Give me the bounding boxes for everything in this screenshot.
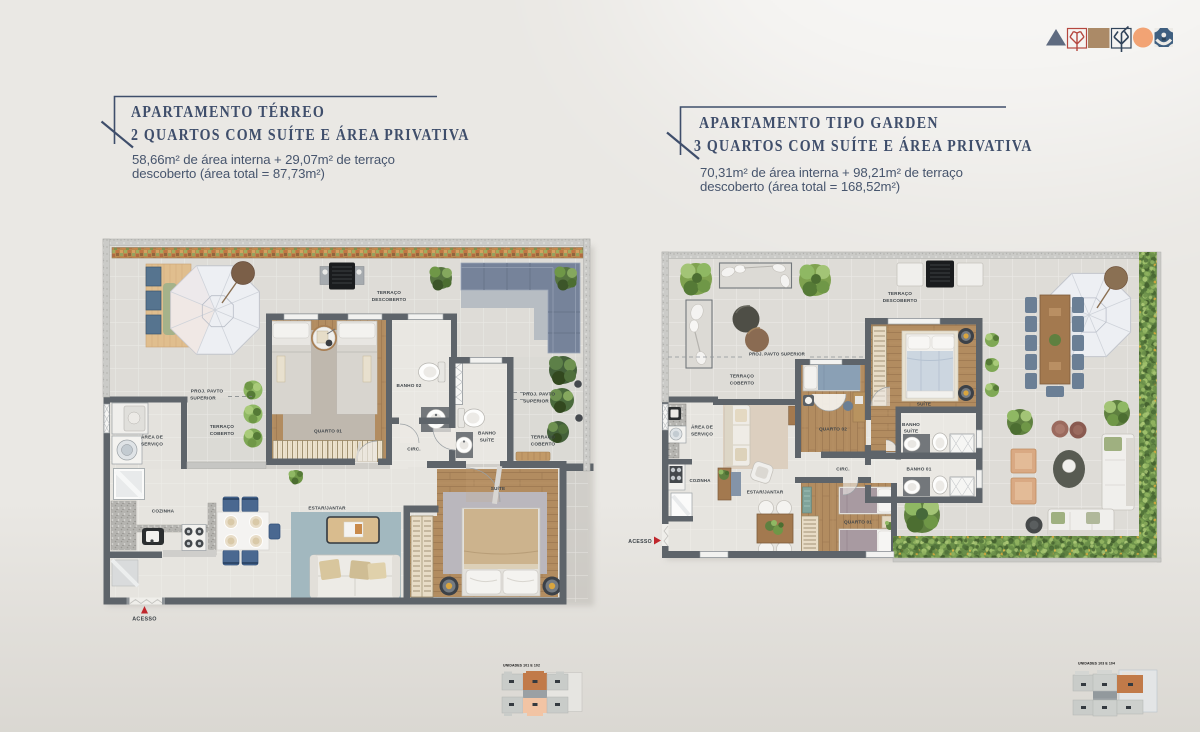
svg-text:PROJ. PAVTO: PROJ. PAVTO bbox=[191, 389, 224, 394]
svg-text:ESTAR/JANTAR: ESTAR/JANTAR bbox=[308, 506, 346, 511]
svg-text:COZINHA: COZINHA bbox=[689, 478, 711, 483]
svg-text:BANHO 02: BANHO 02 bbox=[397, 383, 422, 388]
svg-text:QUARTO 01: QUARTO 01 bbox=[314, 429, 342, 434]
svg-text:SERVIÇO: SERVIÇO bbox=[141, 442, 163, 447]
svg-text:TERRAÇO: TERRAÇO bbox=[377, 290, 401, 295]
svg-text:UNIDADES 101 E 102: UNIDADES 101 E 102 bbox=[503, 664, 540, 668]
svg-text:BANHO: BANHO bbox=[902, 422, 920, 427]
svg-text:TERRAÇO: TERRAÇO bbox=[531, 435, 555, 440]
svg-text:TERRAÇO: TERRAÇO bbox=[210, 424, 234, 429]
svg-text:SUÍTE: SUÍTE bbox=[917, 400, 931, 407]
svg-text:DESCOBERTO: DESCOBERTO bbox=[883, 298, 918, 303]
svg-text:CIRC.: CIRC. bbox=[407, 447, 421, 452]
svg-text:SERVIÇO: SERVIÇO bbox=[691, 432, 713, 437]
svg-text:TERRAÇO: TERRAÇO bbox=[730, 374, 754, 379]
svg-text:COBERTO: COBERTO bbox=[210, 431, 235, 436]
svg-text:SUPERIOR: SUPERIOR bbox=[523, 399, 549, 404]
svg-text:TERRAÇO: TERRAÇO bbox=[888, 291, 912, 296]
svg-text:ÁREA DE: ÁREA DE bbox=[691, 424, 713, 430]
svg-text:ESTAR/JANTAR: ESTAR/JANTAR bbox=[747, 490, 784, 495]
svg-text:CIRC.: CIRC. bbox=[836, 467, 850, 472]
svg-text:QUARTO 02: QUARTO 02 bbox=[819, 427, 847, 432]
svg-text:BANHO: BANHO bbox=[478, 431, 496, 436]
svg-text:SUÍTE: SUÍTE bbox=[480, 436, 495, 443]
svg-text:ACESSO: ACESSO bbox=[132, 617, 157, 623]
svg-text:COZINHA: COZINHA bbox=[152, 509, 175, 514]
svg-text:UNIDADES 103 E 104: UNIDADES 103 E 104 bbox=[1078, 662, 1115, 666]
svg-text:BANHO 01: BANHO 01 bbox=[907, 467, 932, 472]
svg-text:ACESSO: ACESSO bbox=[628, 539, 652, 545]
svg-text:ÁREA DE: ÁREA DE bbox=[141, 434, 163, 440]
svg-text:DESCOBERTO: DESCOBERTO bbox=[372, 297, 407, 302]
svg-text:PROJ. PAVTO SUPERIOR: PROJ. PAVTO SUPERIOR bbox=[749, 352, 806, 357]
svg-text:QUARTO 01: QUARTO 01 bbox=[844, 520, 872, 525]
svg-text:SUPERIOR: SUPERIOR bbox=[190, 396, 216, 401]
svg-text:COBERTO: COBERTO bbox=[531, 442, 556, 447]
svg-text:SUÍTE: SUÍTE bbox=[904, 427, 919, 434]
svg-text:SUÍTE: SUÍTE bbox=[491, 484, 506, 491]
svg-text:COBERTO: COBERTO bbox=[730, 381, 755, 386]
